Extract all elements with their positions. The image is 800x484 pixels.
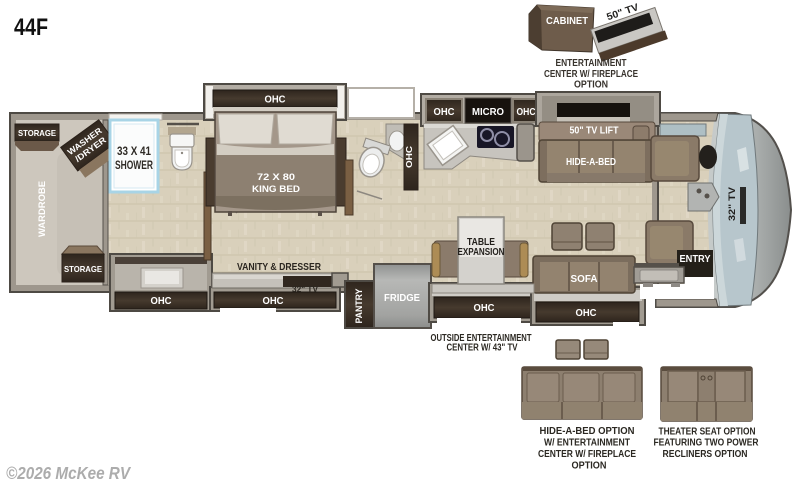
svg-text:50" TV LIFT: 50" TV LIFT	[570, 126, 619, 137]
svg-text:MICRO: MICRO	[472, 107, 504, 118]
svg-text:WARDROBE: WARDROBE	[37, 181, 48, 237]
svg-text:©2026 McKee RV: ©2026 McKee RV	[6, 463, 131, 483]
svg-text:SHOWER: SHOWER	[115, 160, 154, 172]
svg-text:RECLINERS OPTION: RECLINERS OPTION	[663, 449, 748, 460]
svg-text:STORAGE: STORAGE	[64, 264, 102, 274]
svg-text:HIDE-A-BED: HIDE-A-BED	[566, 157, 616, 168]
svg-text:CENTER W/ FIREPLACE: CENTER W/ FIREPLACE	[544, 69, 638, 80]
svg-text:ENTRY: ENTRY	[680, 254, 711, 265]
svg-text:44F: 44F	[14, 14, 48, 41]
svg-text:OHC: OHC	[404, 146, 414, 168]
svg-text:OHC: OHC	[263, 296, 284, 307]
svg-text:HIDE-A-BED OPTION: HIDE-A-BED OPTION	[540, 426, 635, 437]
svg-text:THEATER SEAT OPTION: THEATER SEAT OPTION	[659, 427, 756, 438]
svg-text:OPTION: OPTION	[574, 80, 608, 91]
svg-text:FRIDGE: FRIDGE	[384, 292, 420, 304]
svg-text:OHC: OHC	[265, 95, 286, 106]
svg-text:VANITY & DRESSER: VANITY & DRESSER	[237, 262, 322, 273]
svg-text:72 X 80: 72 X 80	[257, 172, 295, 183]
svg-text:32" TV: 32" TV	[727, 187, 737, 221]
svg-text:STORAGE: STORAGE	[18, 128, 56, 138]
svg-text:OHC: OHC	[576, 308, 597, 319]
svg-text:ENTERTAINMENT: ENTERTAINMENT	[556, 58, 627, 69]
svg-text:W/ ENTERTAINMENT: W/ ENTERTAINMENT	[544, 438, 630, 449]
svg-text:33 X 41: 33 X 41	[117, 146, 152, 158]
svg-text:SOFA: SOFA	[571, 274, 598, 285]
svg-text:OHC: OHC	[474, 303, 495, 314]
svg-text:KING BED: KING BED	[252, 184, 300, 195]
svg-text:CABINET: CABINET	[546, 16, 588, 27]
svg-text:OHC: OHC	[434, 107, 455, 118]
svg-text:FEATURING TWO POWER: FEATURING TWO POWER	[654, 438, 759, 449]
svg-text:OHC: OHC	[517, 107, 536, 118]
svg-text:PANTRY: PANTRY	[354, 289, 364, 324]
svg-text:OPTION: OPTION	[572, 461, 607, 472]
svg-text:32" TV: 32" TV	[292, 285, 319, 294]
svg-text:EXPANSION: EXPANSION	[458, 247, 505, 258]
svg-text:OHC: OHC	[151, 296, 172, 307]
svg-text:CENTER W/ FIREPLACE: CENTER W/ FIREPLACE	[538, 449, 636, 460]
svg-text:CENTER W/ 43" TV: CENTER W/ 43" TV	[447, 343, 518, 354]
